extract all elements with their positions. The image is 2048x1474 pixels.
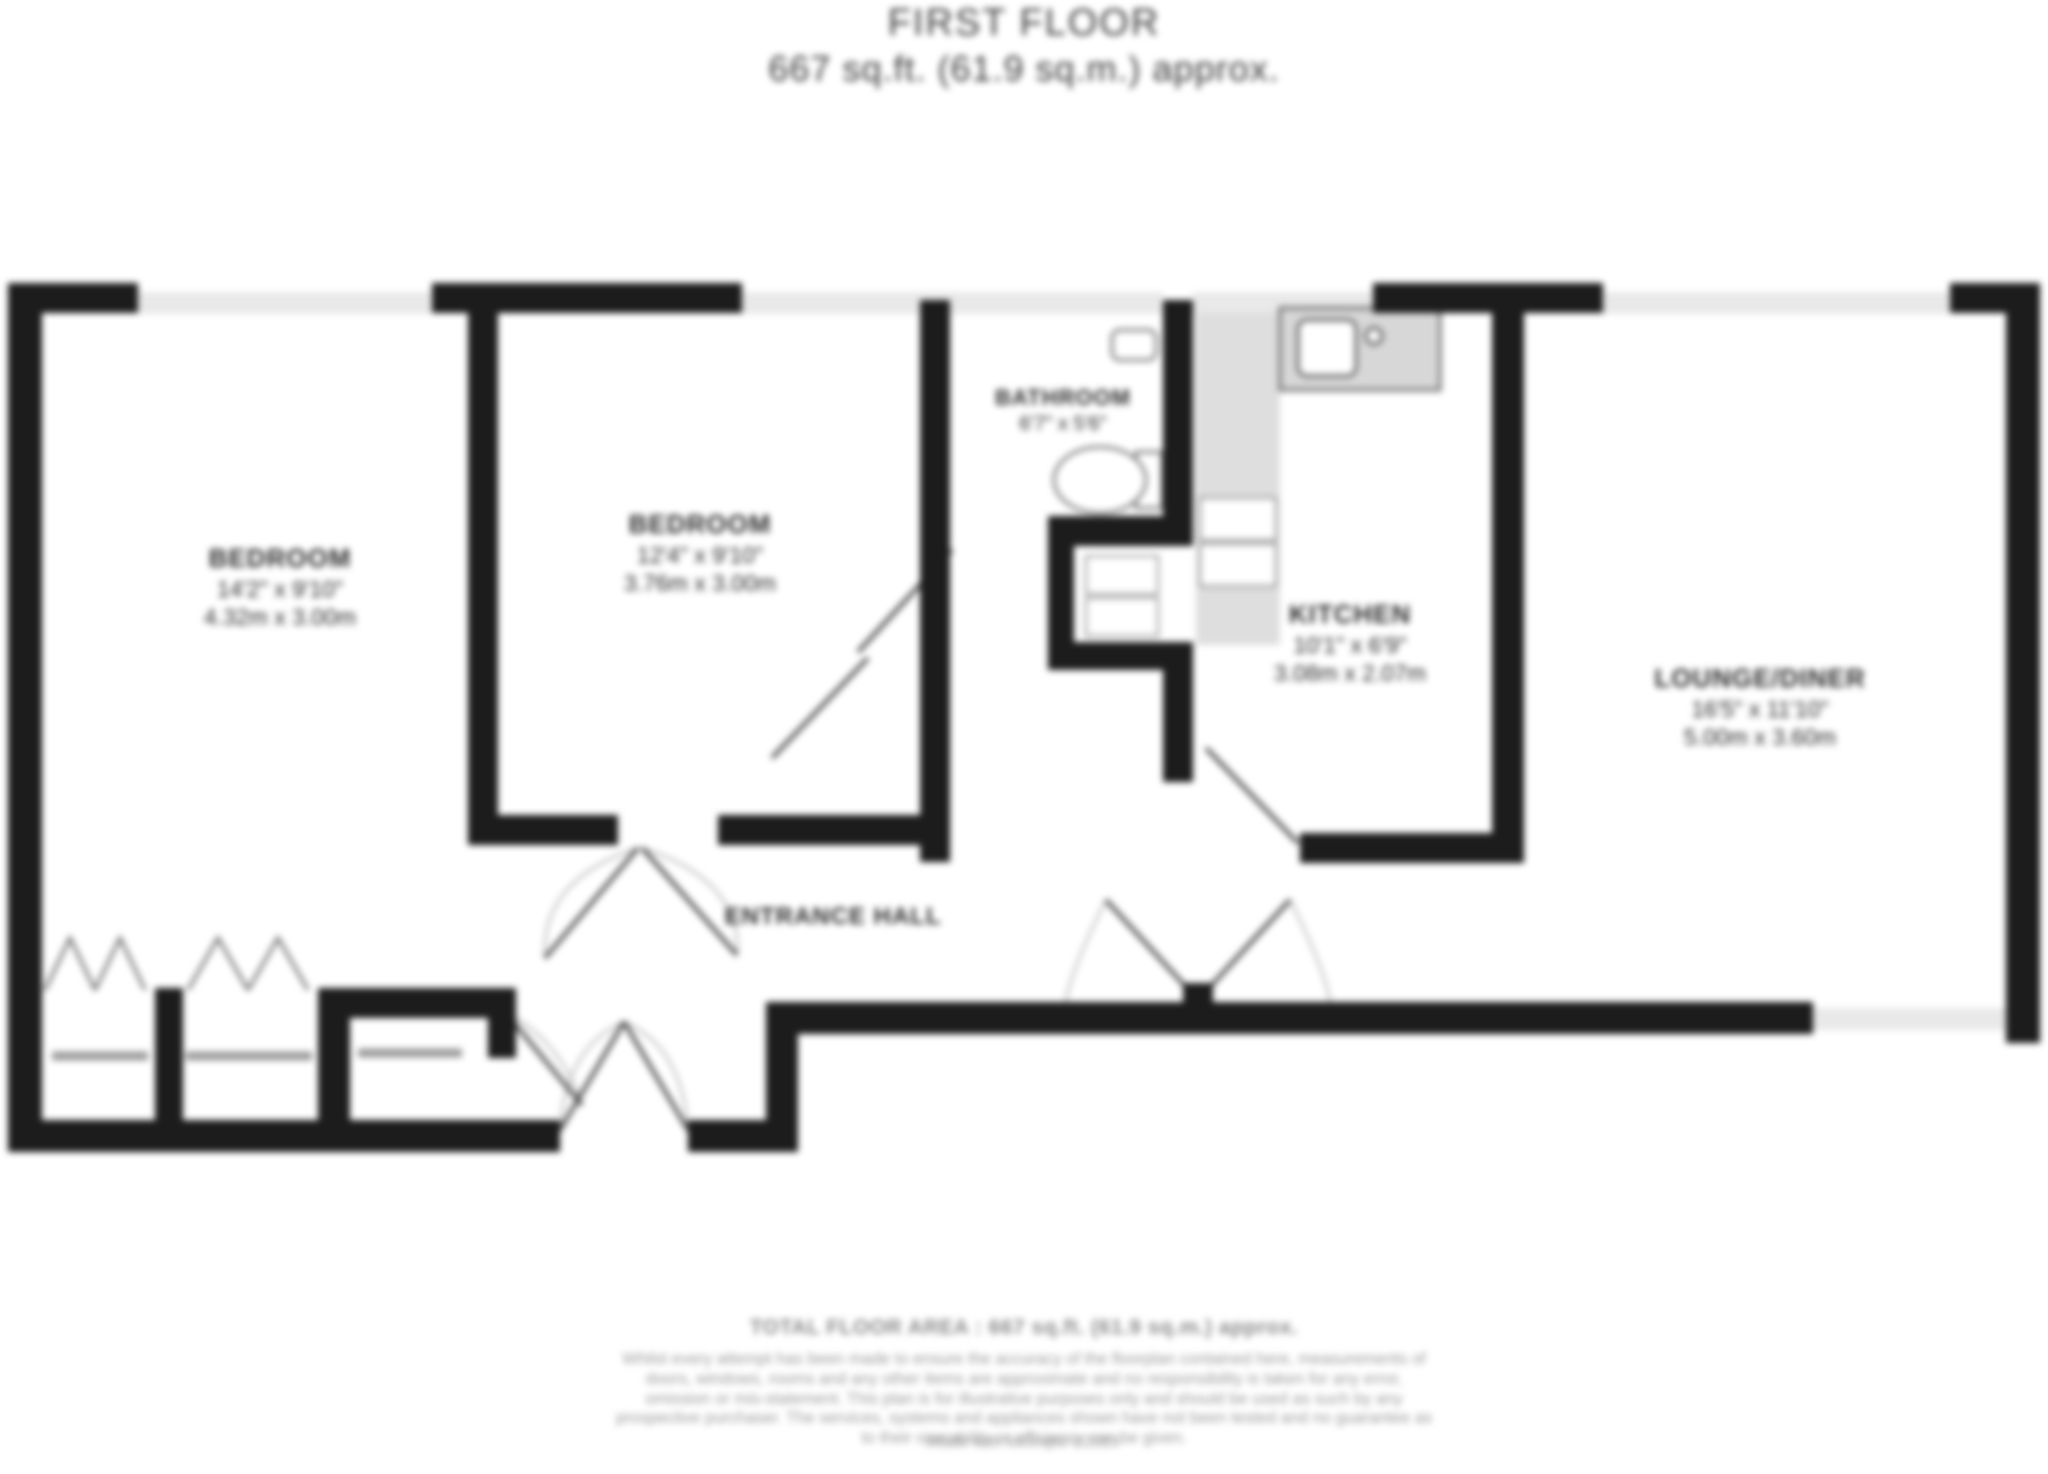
basin-icon [1112,330,1156,360]
room-label-bedroom1: BEDROOM 14'2" x 9'10" 4.32m x 3.00m [130,542,430,631]
front-door [624,1022,688,1130]
room-label-kitchen: KITCHEN 10'1" x 6'9" 3.08m x 2.07m [1225,598,1475,687]
room-label-entrance-hall: ENTRANCE HALL [700,903,966,931]
corridor-door [772,658,868,758]
toilet-icon [1054,447,1146,513]
total-floor-area: TOTAL FLOOR AREA : 667 sq.ft. (61.9 sq.m… [0,1316,2048,1340]
store-door [505,1012,582,1105]
closet-doors [45,938,308,990]
tap-icon [1366,328,1382,344]
kitchen-sink-icon [1298,320,1356,376]
kitchen-door [1206,748,1298,843]
room-label-lounge: LOUNGE/DINER 16'5" x 11'10" 5.00m x 3.60… [1610,662,1910,751]
made-with-credit: Made with Metropix ©2019 [0,1434,2048,1452]
blurred-scan-wrapper: FIRST FLOOR 667 sq.ft. (61.9 sq.m.) appr… [0,0,2048,1474]
appliance-box [1200,544,1276,586]
room-label-bedroom2: BEDROOM 12'4" x 9'10" 3.76m x 3.00m [550,508,850,597]
appliance-box [1200,498,1276,540]
wardrobe-rails [52,1053,462,1056]
floorplan-page: FIRST FLOOR 667 sq.ft. (61.9 sq.m.) appr… [0,0,2048,1474]
cupboard-shelves [1086,556,1158,636]
room-label-bathroom: BATHROOM 6'7" x 5'6" [963,384,1163,436]
kitchen-counter [1196,308,1440,645]
